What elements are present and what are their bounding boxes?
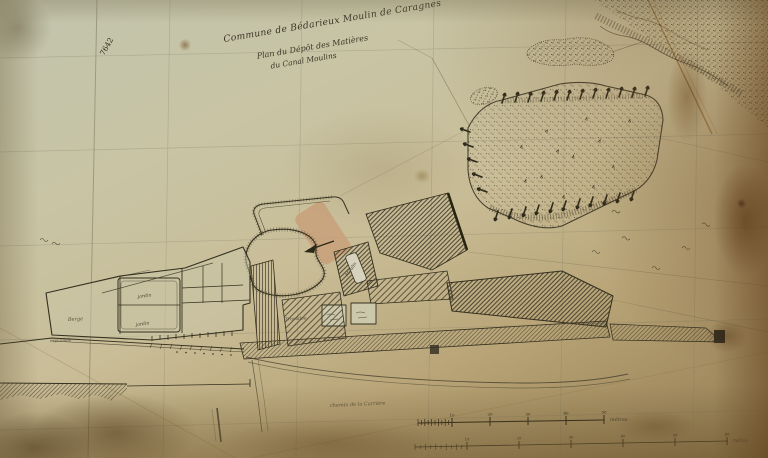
esplanade-label: esplanade: [50, 337, 72, 343]
scale2-tick-20: 20: [517, 436, 522, 441]
strip-vertical-hatch: [251, 260, 280, 350]
mill-complex: [0, 193, 725, 359]
wooded-parcel: [460, 38, 663, 228]
bank-label: Berge: [67, 316, 84, 323]
scale2-tick-10: 10: [465, 437, 470, 442]
scale1-tick-20: 20: [487, 412, 493, 417]
road-label: chemin de la Carrière: [330, 400, 386, 409]
roads: [212, 357, 630, 442]
embankment: [0, 379, 250, 401]
plan-artwork: 10 20 30 40 50 mètres 10 20 30 40 50: [0, 0, 768, 458]
scanned-plan-document: 10 20 30 40 50 mètres 10 20 30 40 50: [0, 0, 768, 458]
building-upper: [366, 193, 467, 270]
scale1-tick-50: 50: [601, 410, 607, 415]
scale2-unit: mètres: [733, 438, 748, 443]
scale1-tick-40: 40: [563, 411, 569, 416]
building-mid: [367, 271, 453, 304]
scale1-tick-30: 30: [525, 412, 531, 417]
scale1-unit: mètres: [610, 416, 628, 423]
copse-blob: [527, 38, 614, 66]
scale2-tick-60: 60: [725, 432, 730, 437]
building-right: [447, 271, 613, 327]
scale2-tick-50: 50: [673, 433, 678, 438]
retaining-wall: [0, 338, 244, 356]
scale2-tick-30: 30: [569, 435, 574, 440]
scale1-tick-10: 10: [449, 413, 455, 418]
scale-bar-secondary: 10 20 30 40 50 60 mètres: [415, 432, 748, 451]
scale2-tick-40: 40: [621, 434, 626, 439]
archive-number: 7642: [98, 36, 115, 57]
